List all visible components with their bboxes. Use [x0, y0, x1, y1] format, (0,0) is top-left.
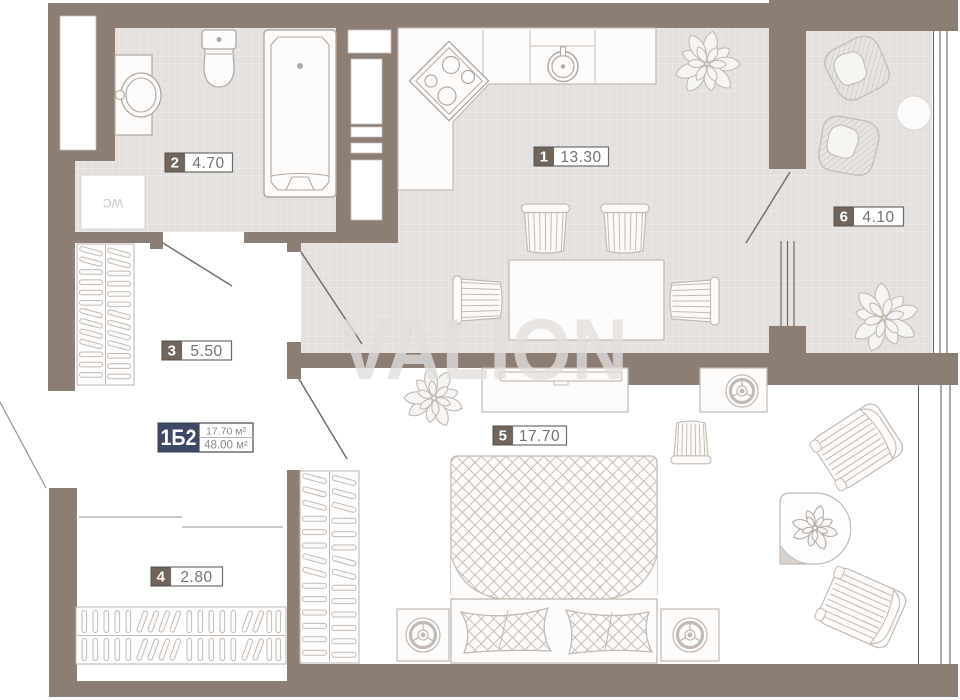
svg-text:VALION: VALION: [339, 302, 628, 398]
svg-text:3: 3: [168, 343, 176, 360]
svg-text:4: 4: [157, 569, 166, 586]
svg-text:5.50: 5.50: [190, 343, 222, 360]
svg-text:17.70 м²: 17.70 м²: [206, 426, 246, 438]
svg-text:6: 6: [840, 209, 848, 226]
svg-text:4.10: 4.10: [862, 209, 894, 226]
svg-text:4.70: 4.70: [192, 155, 224, 172]
svg-text:2.80: 2.80: [180, 569, 212, 586]
svg-text:17.70: 17.70: [519, 428, 560, 445]
svg-text:5: 5: [499, 428, 507, 445]
svg-text:WC: WC: [103, 196, 123, 210]
svg-text:1: 1: [540, 149, 548, 166]
svg-text:1Б2: 1Б2: [161, 425, 197, 450]
svg-text:2: 2: [171, 155, 179, 172]
svg-text:13.30: 13.30: [560, 149, 601, 166]
svg-text:48.00 м²: 48.00 м²: [204, 440, 248, 452]
